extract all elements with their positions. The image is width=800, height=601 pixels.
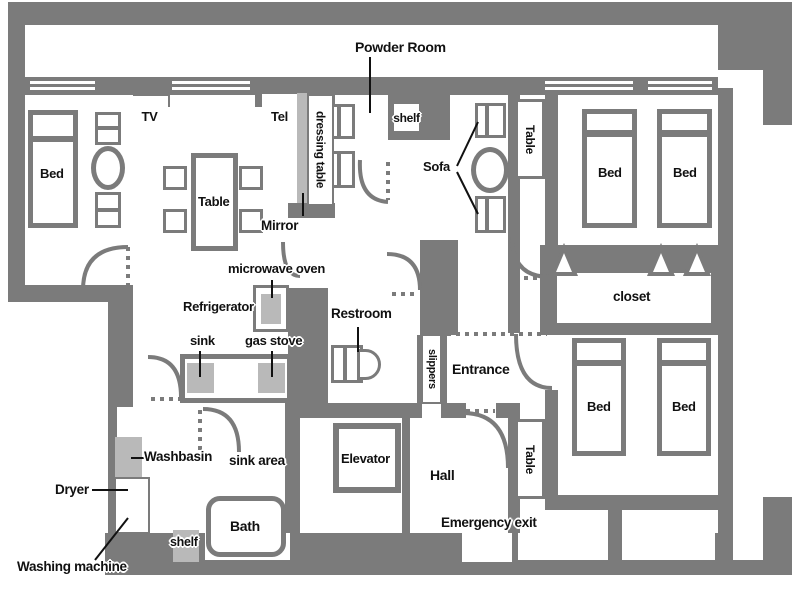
sink-area-label: sink area — [229, 454, 285, 468]
dining-chair — [239, 166, 263, 190]
dressing-table-label-box: dressing table — [307, 94, 334, 206]
table-top-right-box: Table — [515, 99, 545, 179]
closet-label: closet — [613, 290, 650, 304]
dining-table-label: Table — [198, 195, 230, 208]
refrigerator-label: Refrigerator — [183, 300, 254, 313]
toilet-line — [343, 345, 347, 383]
dressing-chair-line — [337, 104, 341, 139]
sink-fill — [187, 363, 214, 393]
wall-segment — [763, 70, 792, 125]
shelf-top-box: shelf — [391, 101, 422, 134]
wall-segment — [8, 2, 792, 25]
floor-plan: TV Tel dressing table shelf Table slippe… — [0, 0, 800, 601]
round-chair — [91, 146, 125, 190]
dining-chair — [163, 209, 187, 233]
bath-label: Bath — [230, 519, 260, 533]
window — [172, 81, 250, 84]
restroom-label: Restroom — [331, 307, 392, 321]
bed — [657, 338, 711, 456]
window — [30, 87, 95, 90]
dressing-chair-line — [337, 151, 341, 188]
wall-segment — [545, 390, 558, 495]
wall-segment — [545, 88, 558, 245]
wall-segment — [496, 403, 520, 418]
service-room — [622, 533, 715, 560]
bed-bottom-1-label: Bed — [587, 400, 611, 413]
wall-segment — [763, 497, 792, 575]
sofa-chair — [475, 103, 506, 138]
side-corridor — [733, 533, 763, 560]
elevator-label: Elevator — [341, 452, 390, 465]
table-bottom-right-label: Table — [524, 445, 536, 474]
wall-segment — [288, 288, 328, 413]
nightstand-line — [95, 208, 121, 212]
window — [648, 87, 712, 90]
dryer-washer-box — [114, 477, 150, 534]
bed-pillow-line — [657, 130, 712, 137]
hall-label: Hall — [430, 468, 454, 482]
tel-label-box: Tel — [262, 94, 297, 139]
dryer-label: Dryer — [55, 483, 89, 497]
microwave-oven-label: microwave oven — [228, 262, 325, 275]
washbasin-fill — [115, 437, 142, 478]
dining-chair — [239, 209, 263, 233]
wall-segment — [508, 248, 520, 333]
wall-segment — [402, 418, 410, 533]
window — [545, 87, 633, 90]
sofa-chair-line — [485, 196, 489, 233]
nightstand-line — [95, 126, 121, 130]
wall-segment — [608, 510, 622, 560]
dressing-table-label: dressing table — [315, 111, 327, 188]
mirror-label: Mirror — [261, 219, 298, 233]
bed-left-label: Bed — [40, 167, 64, 180]
bed-pillow-line — [572, 360, 626, 366]
gas-stove-fill — [258, 363, 285, 393]
slippers-label: slippers — [426, 349, 437, 389]
tel-label: Tel — [271, 110, 288, 123]
window — [30, 81, 95, 84]
dining-chair — [163, 166, 187, 190]
table-top-right-label: Table — [524, 125, 536, 154]
gas-stove-label: gas stove — [245, 334, 302, 347]
wall-segment — [420, 240, 458, 335]
wall-segment — [718, 2, 792, 70]
sink-label: sink — [190, 334, 215, 347]
service-room — [518, 533, 608, 560]
wall-segment — [300, 403, 422, 418]
wall-segment — [545, 495, 733, 510]
toilet-bowl — [357, 349, 381, 380]
entrance-label: Entrance — [452, 362, 510, 376]
tv-label: TV — [141, 110, 157, 123]
wall-segment — [441, 403, 466, 418]
sofa-label: Sofa — [423, 160, 450, 173]
bed — [572, 338, 626, 456]
wall-segment — [718, 88, 733, 535]
table-bottom-right-box: Table — [515, 419, 545, 499]
bed-top-2-label: Bed — [673, 166, 697, 179]
emergency-corridor — [462, 533, 512, 562]
shelf-bottom-label: shelf — [170, 536, 198, 549]
bed-pillow-line — [657, 360, 711, 366]
bed-pillow-line — [582, 130, 637, 137]
bed-pillow-line — [28, 136, 78, 142]
emergency-exit-label: Emergency exit — [441, 516, 537, 530]
bed-bottom-2-label: Bed — [672, 400, 696, 413]
mirror-strip — [297, 93, 307, 203]
shelf-top-label: shelf — [393, 112, 420, 124]
powder-room-label: Powder Room — [355, 40, 446, 54]
sofa-chair — [475, 196, 506, 233]
tv-label-box: TV — [131, 96, 168, 136]
slippers-box: slippers — [421, 334, 442, 404]
washing-machine-label: Washing machine — [17, 560, 127, 574]
round-table — [471, 147, 509, 193]
bed-top-1-label: Bed — [598, 166, 622, 179]
washbasin-label: Washbasin — [144, 450, 212, 464]
wall-segment — [8, 25, 25, 287]
microwave-fill — [261, 294, 281, 324]
window — [545, 81, 633, 84]
sofa-chair-line — [485, 103, 489, 138]
window — [172, 87, 250, 90]
wall-segment — [25, 77, 718, 95]
window — [648, 81, 712, 84]
wall-segment — [108, 295, 133, 407]
